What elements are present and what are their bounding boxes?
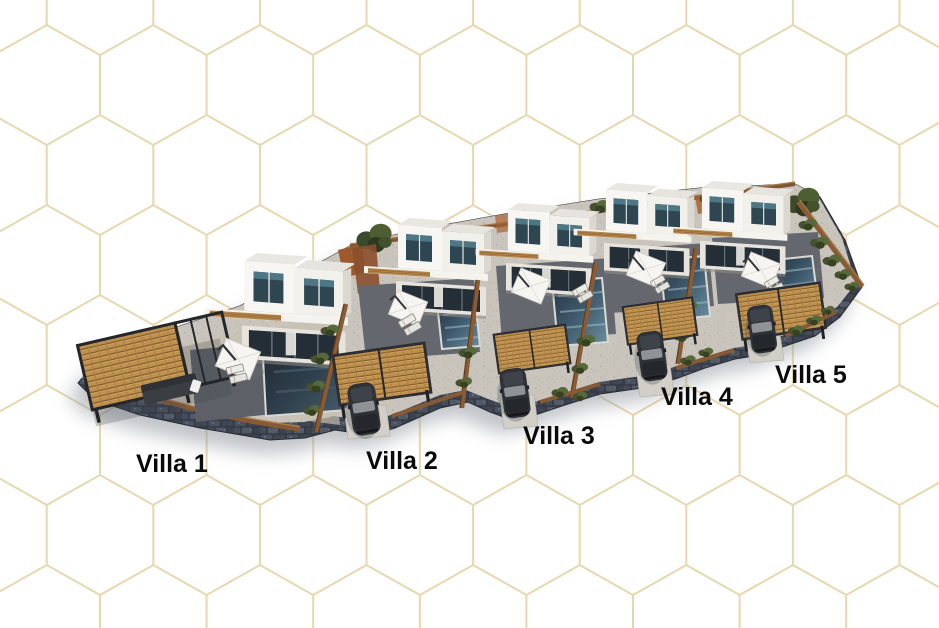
villa-5-label: Villa 5	[775, 361, 847, 390]
villa-development-render: Villa 1 Villa 2 Villa 3 Villa 4 Villa 5	[0, 0, 939, 628]
villa-3-label: Villa 3	[523, 422, 595, 451]
villa-2-label: Villa 2	[366, 447, 438, 476]
villa-1-label: Villa 1	[136, 450, 208, 479]
render-canvas	[0, 0, 939, 628]
villa-4-label: Villa 4	[661, 383, 733, 412]
